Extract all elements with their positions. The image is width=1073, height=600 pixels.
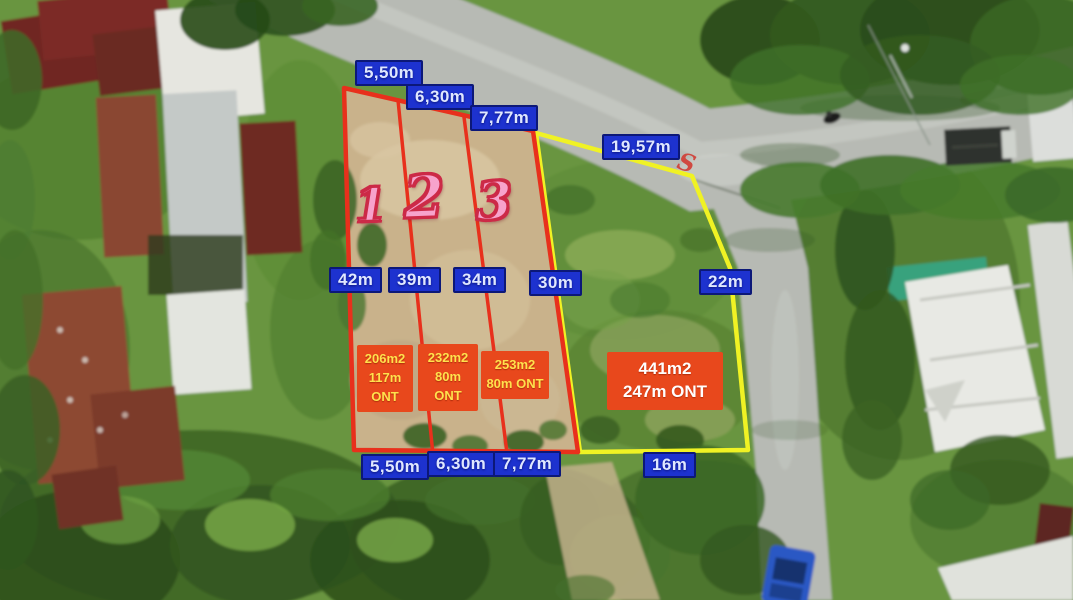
plot3-detail-box: 253m2 80m ONT [481, 351, 549, 399]
measurement-label-top-yellow-plot: 19,57m [602, 134, 680, 160]
measurement-label-side-30m: 30m [529, 270, 582, 296]
yellow-plot-detail-box: 441m2 247m ONT [607, 352, 723, 410]
aerial-land-plot-photo: 5,50m 6,30m 7,77m 19,57m 42m 39m 34m 30m… [0, 0, 1073, 600]
measurement-label-top-plot3: 7,77m [470, 105, 538, 131]
measurement-label-bottom-yellow-plot: 16m [643, 452, 696, 478]
measurement-label-bottom-plot2: 6,30m [427, 451, 495, 477]
measurement-label-side-34m: 34m [453, 267, 506, 293]
plot-number-1: 1 [354, 181, 388, 228]
measurement-label-side-22m: 22m [699, 269, 752, 295]
measurement-label-side-39m: 39m [388, 267, 441, 293]
plot1-detail-box: 206m2 117m ONT [357, 345, 413, 412]
measurement-label-bottom-plot1: 5,50m [361, 454, 429, 480]
aerial-scene-graphic [0, 0, 1073, 600]
measurement-label-side-42m: 42m [329, 267, 382, 293]
measurement-label-bottom-plot3: 7,77m [493, 451, 561, 477]
measurement-label-top-plot2: 6,30m [406, 84, 474, 110]
plot-number-3: 3 [475, 175, 513, 228]
measurement-label-top-plot1: 5,50m [355, 60, 423, 86]
plot-number-2: 2 [403, 167, 445, 226]
plot2-detail-box: 232m2 80m ONT [418, 344, 478, 411]
